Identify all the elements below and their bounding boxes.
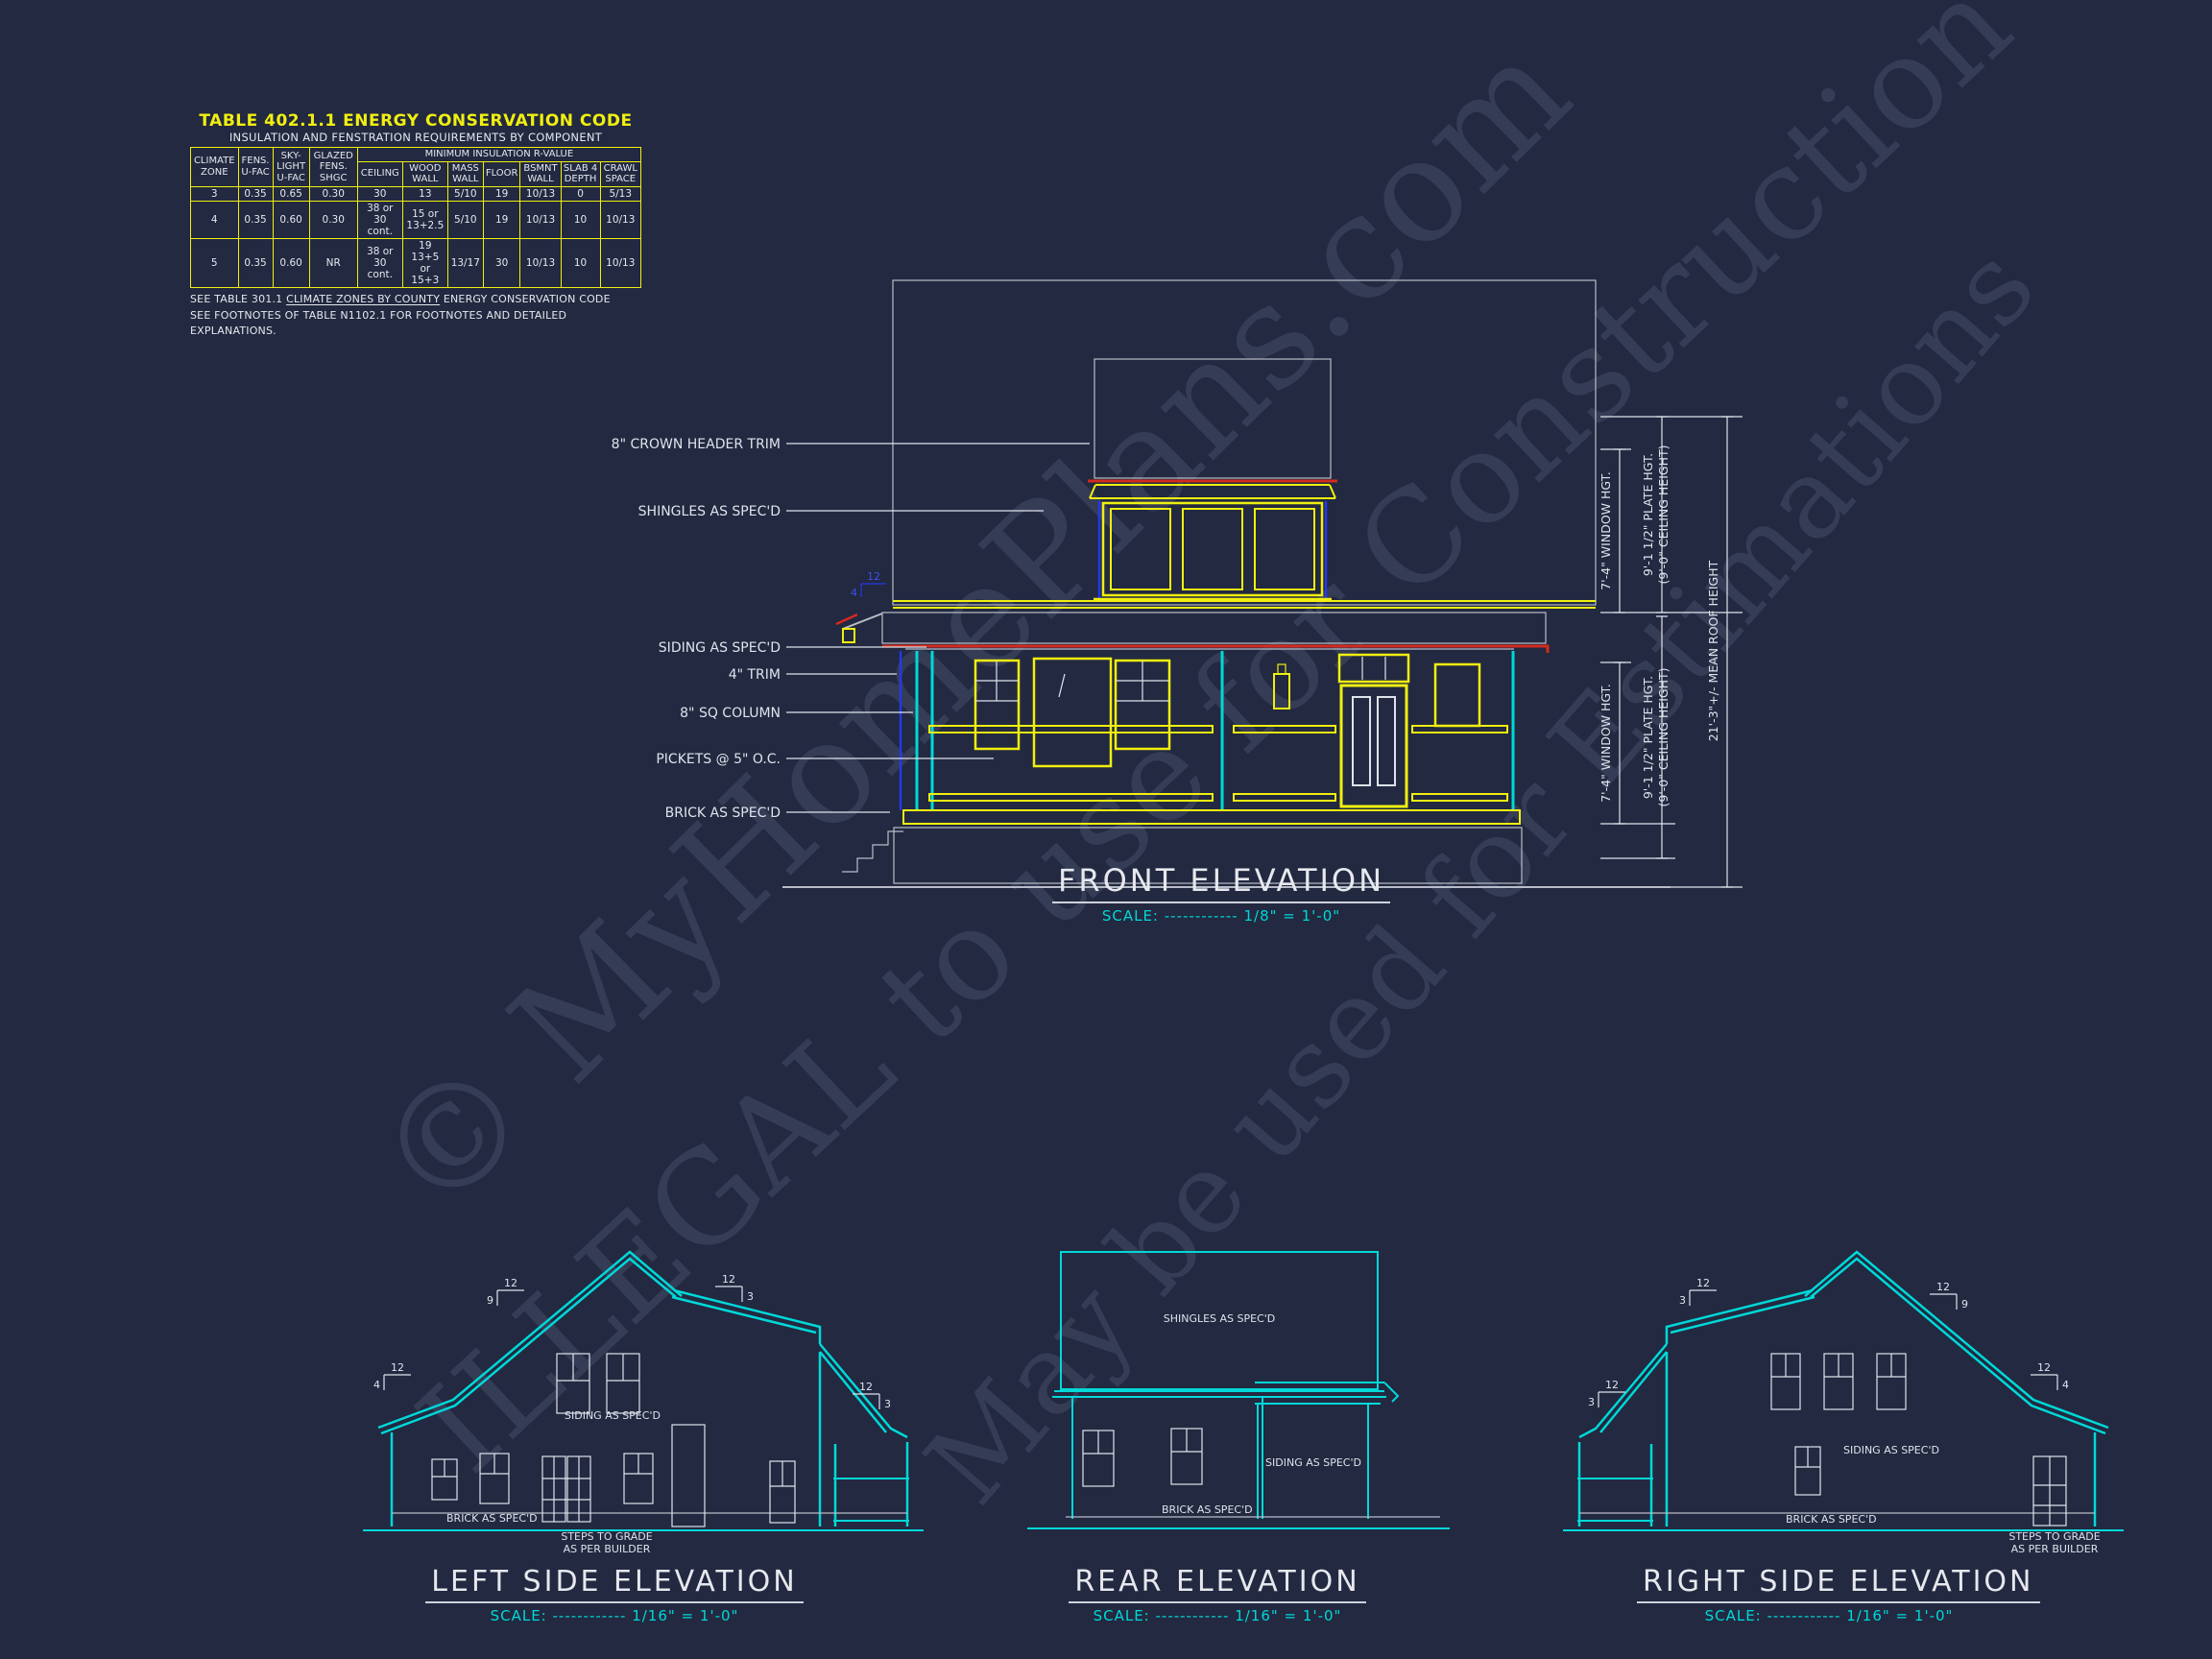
label-crown-header-trim: 8" CROWN HEADER TRIM bbox=[612, 437, 781, 452]
table-cell: 10 bbox=[561, 201, 600, 238]
front-pitch-marker: 12 4 bbox=[851, 570, 886, 599]
entry-door-assembly bbox=[1339, 655, 1408, 806]
table-cell: 0 bbox=[561, 186, 600, 201]
porch-base-band bbox=[903, 810, 1520, 824]
table-cell: 13 bbox=[402, 186, 447, 201]
porch-columns bbox=[917, 651, 1513, 810]
pitch-rise: 3 bbox=[884, 1398, 891, 1410]
table-cell: 19 bbox=[483, 186, 520, 201]
rear-windows bbox=[1083, 1429, 1202, 1486]
roof-return bbox=[843, 613, 882, 629]
span-header: MINIMUM INSULATION R-VALUE bbox=[357, 148, 640, 162]
porch-roof bbox=[882, 613, 1546, 643]
table-cell: 19 bbox=[483, 201, 520, 238]
rear-elevation-scale: SCALE: ------------ 1/16" = 1'-0" bbox=[1025, 1607, 1409, 1624]
table-cell: 5/10 bbox=[447, 201, 483, 238]
table-cell: 13/17 bbox=[447, 238, 483, 287]
label-brick: BRICK AS SPEC'D bbox=[1786, 1513, 1877, 1526]
label-brick: BRICK AS SPEC'D bbox=[1162, 1503, 1253, 1516]
label-siding: SIDING AS SPEC'D bbox=[1265, 1456, 1361, 1469]
diamond-sash bbox=[1183, 509, 1242, 589]
col-header: SLAB 4 DEPTH bbox=[561, 161, 600, 186]
crown-header-trim bbox=[1090, 485, 1335, 498]
col-header: GLAZED FENS. SHGC bbox=[309, 148, 357, 187]
label-siding: SIDING AS SPEC'D bbox=[1843, 1444, 1939, 1456]
right-elevation-title: RIGHT SIDE ELEVATION bbox=[1637, 1565, 2040, 1603]
table-cell: 3 bbox=[191, 186, 239, 201]
pitch-run: 12 bbox=[1936, 1281, 1950, 1293]
right-pitch-markers: 12 3 12 9 12 4 12 3 bbox=[1588, 1277, 2069, 1408]
pitch-rise: 4 bbox=[373, 1379, 380, 1391]
energy-table: CLIMATE ZONE FENS. U-FAC SKY-LIGHT U-FAC… bbox=[190, 147, 641, 288]
table-cell: 38 or 30 cont. bbox=[357, 201, 402, 238]
label-shingles: SHINGLES AS SPEC'D bbox=[1164, 1312, 1276, 1325]
diamond-sash bbox=[1111, 509, 1170, 589]
transom-window bbox=[1339, 655, 1408, 682]
energy-code-table-block: TABLE 402.1.1 ENERGY CONSERVATION CODE I… bbox=[190, 111, 641, 340]
col-header: WOOD WALL bbox=[402, 161, 447, 186]
window-left bbox=[975, 661, 1019, 749]
table-cell: 10/13 bbox=[520, 186, 561, 201]
left-elevation-title: LEFT SIDE ELEVATION bbox=[425, 1565, 803, 1603]
label-steps-2: AS PER BUILDER bbox=[564, 1543, 651, 1555]
dormer-window bbox=[1088, 481, 1337, 599]
window-center bbox=[1116, 661, 1169, 749]
rear-elevation-title-block: REAR ELEVATION SCALE: ------------ 1/16"… bbox=[1025, 1565, 1409, 1624]
energy-table-body: 30.350.650.3030135/101910/1305/1340.350.… bbox=[191, 186, 641, 288]
porch-light-fixture bbox=[1274, 664, 1289, 709]
col-header: CLIMATE ZONE bbox=[191, 148, 239, 187]
pitch-run: 12 bbox=[391, 1361, 404, 1374]
pitch-rise: 4 bbox=[851, 587, 857, 599]
porch-railing bbox=[929, 726, 1507, 801]
left-elevation-title-block: LEFT SIDE ELEVATION SCALE: ------------ … bbox=[422, 1565, 806, 1624]
energy-table-subtitle: INSULATION AND FENSTRATION REQUIREMENTS … bbox=[190, 131, 641, 144]
right-side-elevation-drawing: 12 3 12 9 12 4 12 3 SIDING AS SPEC'D BRI… bbox=[1555, 1240, 2131, 1557]
blueprint-sheet: © MyHomePlans.com ILLEGAL to use for Con… bbox=[0, 0, 2212, 1659]
table-cell: 10 bbox=[561, 238, 600, 287]
label-brick: BRICK AS SPEC'D bbox=[446, 1512, 538, 1525]
table-cell: 0.35 bbox=[238, 238, 273, 287]
front-dimensions: 7'-4" WINDOW HGT. 9'-1 1/2" PLATE HGT. (… bbox=[1599, 417, 1743, 887]
table-cell: 0.30 bbox=[309, 201, 357, 238]
table-cell: 0.30 bbox=[309, 186, 357, 201]
table-cell: 0.35 bbox=[238, 201, 273, 238]
pitch-run: 12 bbox=[1605, 1379, 1619, 1391]
table-row: 50.350.60NR38 or 30 cont.19 13+5 or 15+3… bbox=[191, 238, 641, 287]
table-cell: 30 bbox=[483, 238, 520, 287]
dim-window-hgt-lower: 7'-4" WINDOW HGT. bbox=[1599, 684, 1613, 803]
right-elevation-scale: SCALE: ------------ 1/16" = 1'-0" bbox=[1637, 1607, 2021, 1624]
col-header: FENS. U-FAC bbox=[238, 148, 273, 187]
front-elevation-title-block: FRONT ELEVATION SCALE: ------------ 1/8"… bbox=[1029, 862, 1413, 925]
left-elevation-scale: SCALE: ------------ 1/16" = 1'-0" bbox=[422, 1607, 806, 1624]
table-cell: 10/13 bbox=[600, 201, 640, 238]
diamond-window-right bbox=[1435, 664, 1479, 726]
label-4in-trim: 4" TRIM bbox=[729, 667, 781, 683]
energy-table-notes: SEE TABLE 301.1 CLIMATE ZONES BY COUNTY … bbox=[190, 292, 641, 340]
dim-mean-roof-height: 21'-3"+/- MEAN ROOF HEIGHT bbox=[1706, 560, 1720, 741]
window-side-trim bbox=[1099, 501, 1326, 599]
label-steps-1: STEPS TO GRADE bbox=[561, 1530, 652, 1543]
pitch-run: 12 bbox=[504, 1277, 517, 1289]
table-cell: 0.65 bbox=[273, 186, 309, 201]
dim-window-hgt-upper: 7'-4" WINDOW HGT. bbox=[1599, 471, 1613, 590]
pitch-rise: 3 bbox=[1679, 1294, 1686, 1307]
table-cell: 10/13 bbox=[520, 201, 561, 238]
col-header: CEILING bbox=[357, 161, 402, 186]
pitch-rise: 3 bbox=[1588, 1396, 1595, 1408]
extension-lines bbox=[1600, 417, 1743, 887]
pitch-rise: 3 bbox=[747, 1290, 754, 1303]
eave-bands bbox=[836, 601, 1596, 653]
label-sq-column: 8" SQ COLUMN bbox=[680, 706, 781, 721]
dim-ceiling-upper: (9'-0" CEILING HEIGHT) bbox=[1656, 445, 1671, 584]
energy-table-title: TABLE 402.1.1 ENERGY CONSERVATION CODE bbox=[190, 111, 641, 131]
label-siding: SIDING AS SPEC'D bbox=[659, 640, 781, 656]
table-cell: 4 bbox=[191, 201, 239, 238]
label-steps-1: STEPS TO GRADE bbox=[2008, 1530, 2100, 1543]
energy-table-header: CLIMATE ZONE FENS. U-FAC SKY-LIGHT U-FAC… bbox=[191, 148, 641, 187]
label-shingles: SHINGLES AS SPEC'D bbox=[638, 504, 781, 519]
table-cell: 15 or 13+2.5 bbox=[402, 201, 447, 238]
dim-plate-hgt-upper: 9'-1 1/2" PLATE HGT. bbox=[1641, 453, 1655, 576]
pitch-run: 12 bbox=[867, 570, 880, 583]
table-cell: 19 13+5 or 15+3 bbox=[402, 238, 447, 287]
pitch-rise: 4 bbox=[2062, 1379, 2069, 1391]
note-1: SEE TABLE 301.1 CLIMATE ZONES BY COUNTY … bbox=[190, 292, 641, 308]
pitch-run: 12 bbox=[2037, 1361, 2051, 1374]
left-pitch-markers: 12 9 12 4 12 3 12 3 bbox=[373, 1273, 891, 1410]
rear-outline bbox=[1027, 1252, 1450, 1528]
table-cell: 30 bbox=[357, 186, 402, 201]
table-row: 40.350.600.3038 or 30 cont.15 or 13+2.55… bbox=[191, 201, 641, 238]
left-house-outline bbox=[363, 1252, 924, 1530]
main-roof bbox=[893, 280, 1596, 605]
window-frame bbox=[1103, 503, 1322, 595]
col-header: FLOOR bbox=[483, 161, 520, 186]
table-cell: 10/13 bbox=[520, 238, 561, 287]
rear-elevation-drawing: SHINGLES AS SPEC'D SIDING AS SPEC'D BRIC… bbox=[1027, 1240, 1450, 1557]
col-header: SKY-LIGHT U-FAC bbox=[273, 148, 309, 187]
table-cell: 38 or 30 cont. bbox=[357, 238, 402, 287]
label-pickets: PICKETS @ 5" O.C. bbox=[656, 752, 781, 767]
entry-door bbox=[1341, 685, 1407, 806]
note-2: SEE FOOTNOTES OF TABLE N1102.1 FOR FOOTN… bbox=[190, 308, 641, 340]
front-elevation-title: FRONT ELEVATION bbox=[1052, 862, 1390, 903]
label-steps-2: AS PER BUILDER bbox=[2011, 1543, 2099, 1555]
table-row: 30.350.650.3030135/101910/1305/13 bbox=[191, 186, 641, 201]
table-cell: NR bbox=[309, 238, 357, 287]
table-cell: 0.60 bbox=[273, 238, 309, 287]
pitch-run: 12 bbox=[1696, 1277, 1710, 1289]
front-elevation-scale: SCALE: ------------ 1/8" = 1'-0" bbox=[1029, 907, 1413, 925]
right-windows bbox=[1771, 1354, 2066, 1526]
left-side-elevation-drawing: 12 9 12 4 12 3 12 3 SIDING AS SPEC'D BRI… bbox=[355, 1240, 931, 1557]
front-elevation-drawing: 12 4 bbox=[610, 267, 1791, 939]
table-cell: 5/10 bbox=[447, 186, 483, 201]
rear-elevation-title: REAR ELEVATION bbox=[1069, 1565, 1365, 1603]
col-header: CRAWL SPACE bbox=[600, 161, 640, 186]
dim-plate-hgt-lower: 9'-1 1/2" PLATE HGT. bbox=[1641, 676, 1655, 799]
return-red bbox=[836, 614, 857, 624]
door-opening bbox=[1034, 659, 1111, 766]
col-header: BSMNT WALL bbox=[520, 161, 561, 186]
diamond-sash bbox=[1255, 509, 1314, 589]
return-trim bbox=[843, 629, 854, 642]
pitch-rise: 9 bbox=[1961, 1298, 1968, 1310]
col-header: MASS WALL bbox=[447, 161, 483, 186]
label-brick: BRICK AS SPEC'D bbox=[665, 805, 781, 821]
dim-ceiling-lower: (9'-0" CEILING HEIGHT) bbox=[1656, 667, 1671, 806]
pitch-run: 12 bbox=[859, 1381, 873, 1393]
table-cell: 5/13 bbox=[600, 186, 640, 201]
pitch-rise: 9 bbox=[487, 1294, 493, 1307]
first-floor-wall bbox=[901, 649, 1514, 810]
table-cell: 5 bbox=[191, 238, 239, 287]
right-house-outline bbox=[1563, 1252, 2124, 1530]
label-siding: SIDING AS SPEC'D bbox=[565, 1409, 661, 1422]
table-cell: 0.60 bbox=[273, 201, 309, 238]
right-elevation-title-block: RIGHT SIDE ELEVATION SCALE: ------------… bbox=[1637, 1565, 2021, 1624]
pitch-run: 12 bbox=[722, 1273, 735, 1286]
table-cell: 0.35 bbox=[238, 186, 273, 201]
